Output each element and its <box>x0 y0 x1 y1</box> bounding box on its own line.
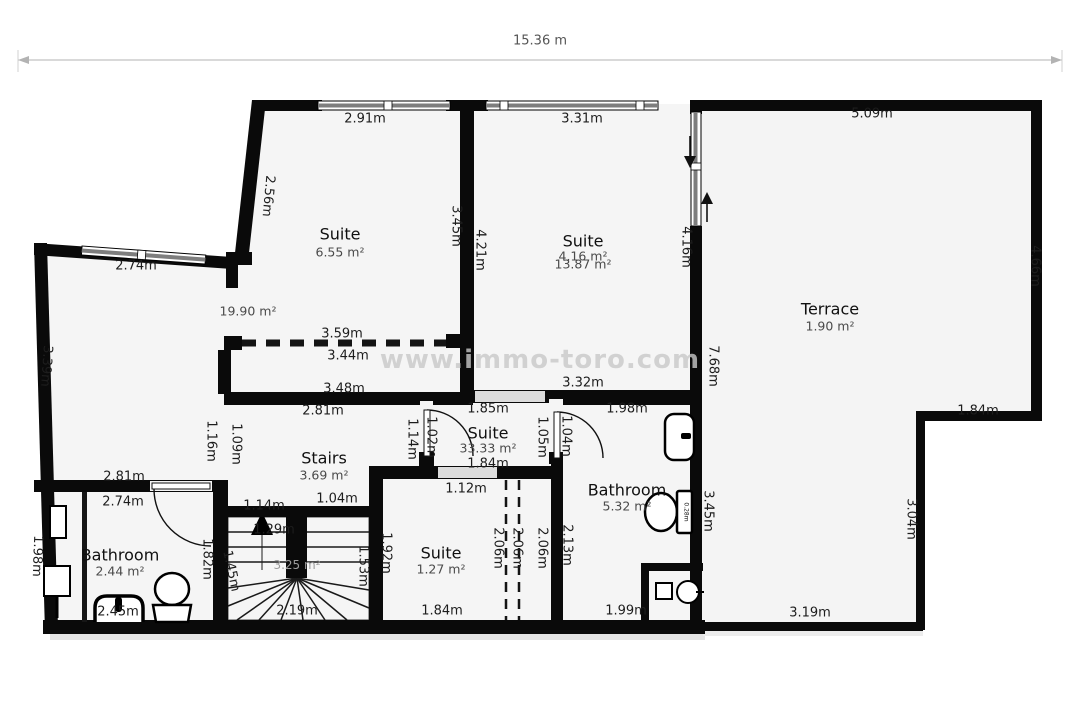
dimension-label: 2.74m <box>115 259 157 274</box>
floor-plan: 15.36 mwww.immo-toro.com2.91m3.31m5.09m2… <box>0 0 1080 720</box>
dimension-label: 1.82m <box>200 538 215 580</box>
dimension-label: 1.45m <box>219 549 242 593</box>
dimension-label: 1.98m <box>29 535 45 577</box>
dimension-label: 3.59m <box>321 327 363 342</box>
dimension-label: 3.04m <box>904 498 919 540</box>
dimension-label: 2.13m <box>560 524 575 566</box>
dimension-label: 1.98m <box>606 402 648 417</box>
dimension-label: 2.81m <box>103 470 145 485</box>
dimension-label: 3.19m <box>789 606 831 621</box>
dimension-label: 3.45m <box>449 205 464 247</box>
watermark-text: www.immo-toro.com <box>380 345 700 375</box>
dimension-label: 3.45m <box>701 490 716 532</box>
dimension-label: 1.99m <box>605 604 647 619</box>
dimension-label: 3.31m <box>561 112 603 127</box>
dimension-label: 3.44m <box>327 349 369 364</box>
dimension-label: 2.06m <box>535 527 550 569</box>
dimension-label: 1.84m <box>957 404 999 419</box>
room-name-label: Bathroom <box>588 481 667 500</box>
dimension-label: 2.74m <box>102 495 144 510</box>
dimension-label: 2.81m <box>302 404 344 419</box>
area-label: 19.90 m² <box>220 304 277 319</box>
room-area-label: 1.90 m² <box>806 319 855 334</box>
room-area-label: 1.27 m² <box>417 562 466 577</box>
dimension-label: 1.04m <box>316 492 358 507</box>
dimension-label: 2.45m <box>97 605 139 620</box>
room-name-label: Bathroom <box>81 546 160 565</box>
dimension-label: 1.84m <box>421 604 463 619</box>
dimension-label: 1.53m <box>356 545 371 587</box>
room-area-label: 2.44 m² <box>96 564 145 579</box>
dimension-label: 1.14m <box>243 499 285 514</box>
dimension-label: 1.12m <box>445 482 487 497</box>
room-area-label: 6.55 m² <box>316 245 365 260</box>
dimension-label: 3.39m <box>37 345 55 388</box>
room-area-label: 13.87 m² <box>555 257 612 272</box>
dimension-label: 4.16m <box>679 226 694 268</box>
room-area-label: 33.33 m² <box>460 441 517 456</box>
dimension-label: 7.68m <box>706 345 721 387</box>
dimension-label: 1.05m <box>535 416 550 458</box>
dimension-label: 2.06m <box>491 527 506 569</box>
dimension-label: 1.04m <box>559 415 574 457</box>
dimension-label: 3.32m <box>562 376 604 391</box>
dimension-label: 4.66m <box>1028 245 1043 287</box>
room-name-label: Suite <box>320 225 361 244</box>
dimension-label: 0.28m <box>683 502 690 521</box>
dimension-label: 1.02m <box>424 416 439 458</box>
dimension-label: 2.56m <box>259 175 278 218</box>
dimension-label: 4.21m <box>473 229 488 271</box>
dimension-label: 2.19m <box>276 604 318 619</box>
dimension-label: 2.91m <box>344 112 386 127</box>
dimension-label: 1.84m <box>467 457 509 472</box>
dimension-label: 1.85m <box>467 402 509 417</box>
dimension-label: 1.92m <box>379 532 394 574</box>
overall-dimension-label: 15.36 m <box>513 34 567 49</box>
room-area-label: 3.69 m² <box>300 468 349 483</box>
room-name-label: Stairs <box>301 449 347 468</box>
room-name-label: Terrace <box>801 300 859 319</box>
dimension-label: 1.16m <box>204 420 219 462</box>
dimension-label: 1.14m <box>405 418 420 460</box>
dimension-label: 2.06m <box>510 527 525 569</box>
room-area-label: 5.32 m² <box>603 499 652 514</box>
labels-layer: 15.36 mwww.immo-toro.com2.91m3.31m5.09m2… <box>0 0 1080 720</box>
dimension-label: 1.29m <box>253 523 295 538</box>
dimension-label: 1.09m <box>229 423 244 465</box>
dimension-label: 5.09m <box>851 107 893 122</box>
dimension-label: 3.48m <box>323 382 365 397</box>
area-label: 3.25 m² <box>273 558 320 572</box>
room-name-label: Suite <box>421 544 462 563</box>
